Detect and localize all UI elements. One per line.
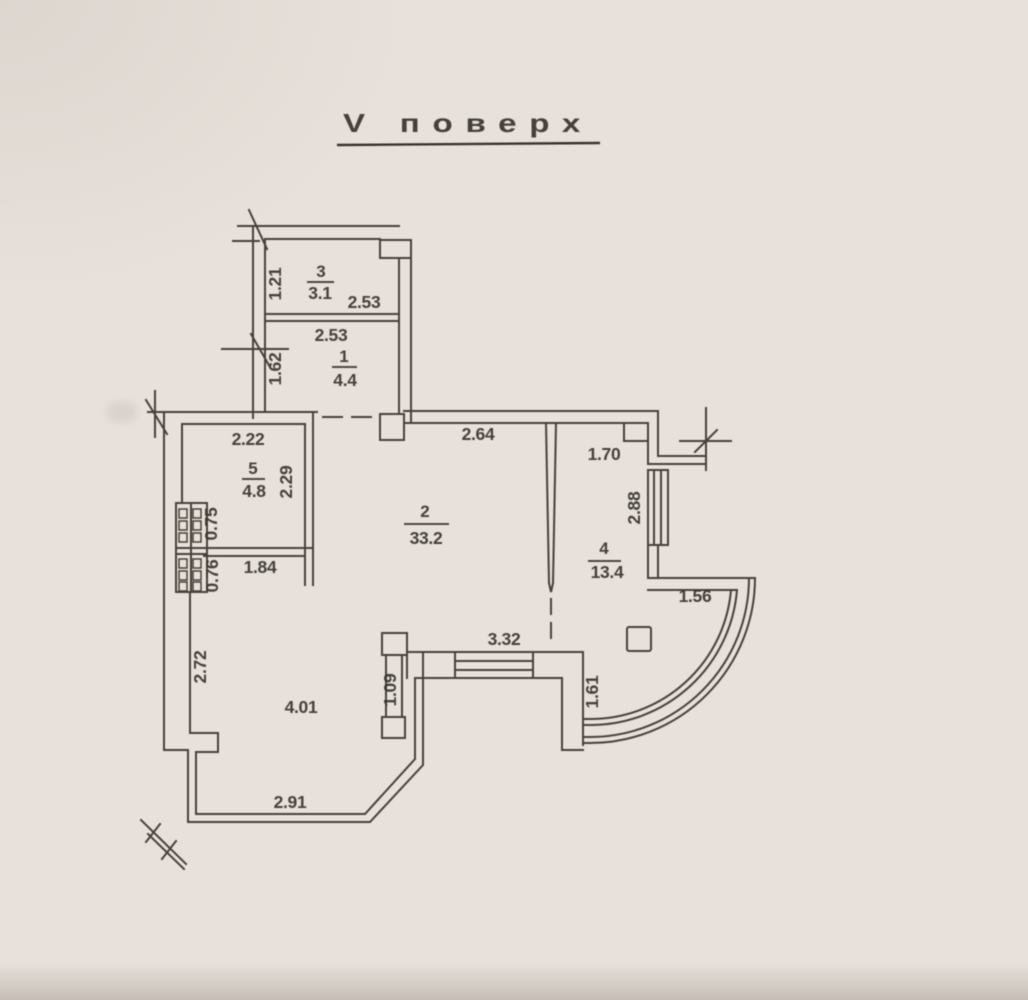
- dim-1-21: 1.21: [265, 267, 285, 300]
- dim-1-61: 1.61: [582, 675, 602, 708]
- room-1-number: 1: [339, 347, 348, 366]
- dim-1-84: 1.84: [244, 557, 277, 577]
- dim-2-29: 2.29: [276, 465, 296, 498]
- dim-2-64: 2.64: [462, 424, 495, 444]
- dim-3-32: 3.32: [488, 629, 521, 649]
- paper-shadow-bottom: [0, 962, 1028, 1000]
- room-5-number: 5: [248, 459, 257, 478]
- dim-2-88: 2.88: [624, 491, 644, 524]
- room-3-area: 3.1: [308, 283, 332, 303]
- room-1-area: 4.4: [333, 370, 357, 390]
- dim-2-91: 2.91: [274, 792, 307, 812]
- dim-0-76: 0.76: [202, 559, 222, 592]
- dim-1-56: 1.56: [679, 586, 712, 606]
- room-3-number: 3: [316, 262, 325, 281]
- dim-1-70: 1.70: [588, 444, 621, 464]
- dim-1-09: 1.09: [380, 673, 400, 706]
- paper-smudge: [106, 401, 138, 423]
- scanned-floor-plan-page: V поверх 3 3.1 1 4.4 5 4.8 2 33.2 4 13.4: [0, 0, 1028, 1000]
- dim-2-53-room1: 2.53: [315, 325, 348, 345]
- floor-plan-drawing: V поверх 3 3.1 1 4.4 5 4.8 2 33.2 4 13.4: [0, 0, 1028, 1000]
- dim-2-72: 2.72: [190, 650, 210, 683]
- paper-vignette-top-left: [0, 0, 420, 300]
- dim-0-75: 0.75: [201, 507, 221, 540]
- room-2-area: 33.2: [410, 528, 443, 548]
- room-4-area: 13.4: [591, 562, 624, 582]
- room-2-number: 2: [420, 502, 429, 521]
- room-5-area: 4.8: [242, 481, 266, 501]
- title: V поверх: [343, 108, 593, 138]
- dim-2-53-room3: 2.53: [348, 292, 381, 312]
- dim-2-22: 2.22: [232, 429, 265, 449]
- dim-4-01: 4.01: [285, 697, 318, 717]
- dim-1-62: 1.62: [265, 352, 285, 385]
- room-4-number: 4: [599, 539, 609, 558]
